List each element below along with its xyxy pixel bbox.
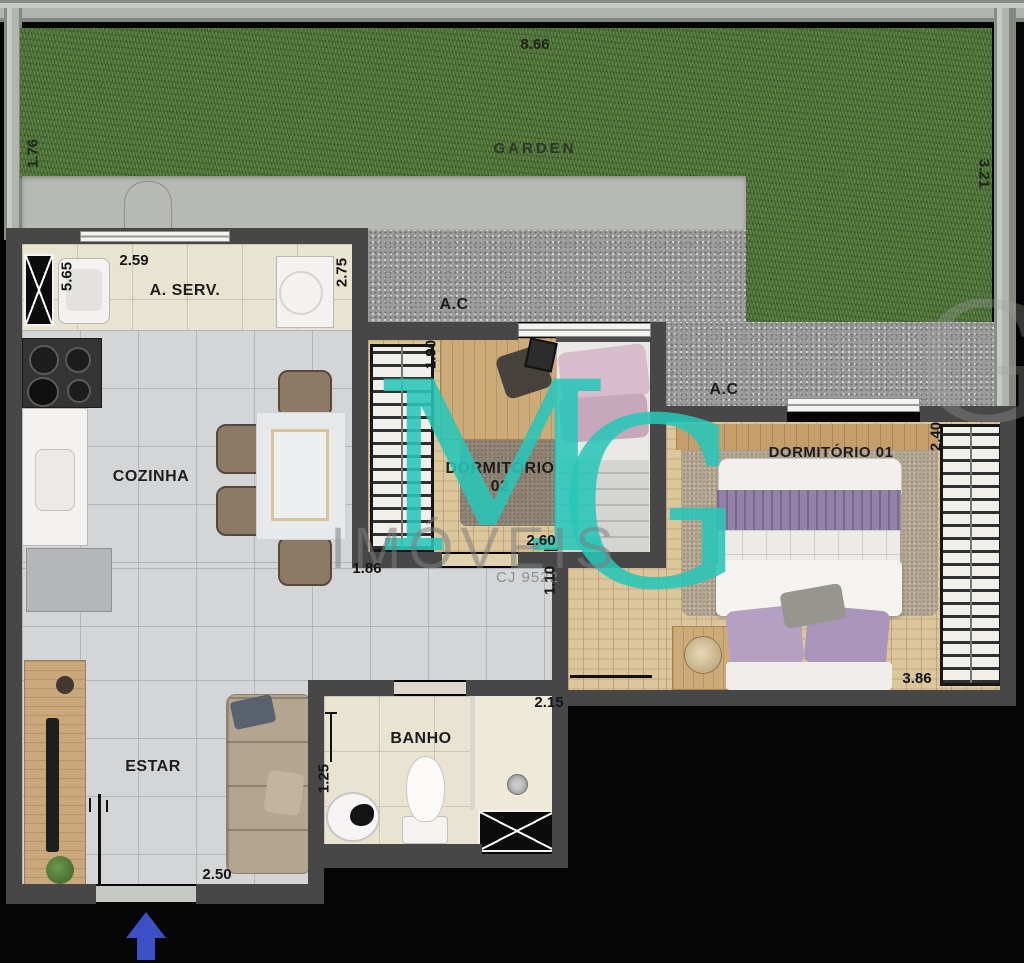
dim-bathroom-depth: 1.25 xyxy=(316,752,333,806)
washing-machine xyxy=(276,256,334,328)
service-area-label: A. SERV. xyxy=(130,282,240,300)
sliding-door-track xyxy=(570,675,652,678)
bedroom1-label: DORMITÓRIO 01 xyxy=(746,444,916,461)
bed1-foot-sheet xyxy=(726,662,892,690)
entry-threshold xyxy=(96,886,196,902)
garden-label: GARDEN xyxy=(470,140,600,157)
ac-label-1: A.C xyxy=(424,296,484,314)
service-window xyxy=(80,231,230,242)
dim-garden-width: 8.66 xyxy=(505,36,565,53)
living-label: ESTAR xyxy=(108,758,198,776)
bedroom1-window xyxy=(787,398,920,412)
shower-partition xyxy=(470,696,475,810)
garden-wall-top xyxy=(0,0,1024,22)
wall xyxy=(196,884,322,904)
entrance-arrow-head xyxy=(126,912,166,938)
dim-service-length: 5.65 xyxy=(59,250,76,304)
dim-entry-width: 2.50 xyxy=(192,866,242,883)
door-handle-mark xyxy=(89,798,91,812)
door-handle-mark xyxy=(106,800,108,812)
bathroom-label: BANHO xyxy=(376,730,466,748)
dining-chair xyxy=(278,370,332,418)
floor-plan: GARDEN A. SERV. A.C A.C COZINHA ESTAR BA… xyxy=(0,0,1024,963)
dining-chair xyxy=(278,536,332,586)
patio-gate xyxy=(124,181,172,230)
burner xyxy=(65,347,91,373)
dim-bedroom2-closet: 1.90 xyxy=(423,328,440,382)
bed1-bolster xyxy=(718,458,902,494)
washer-drum xyxy=(279,271,323,315)
plant xyxy=(46,856,74,884)
burner xyxy=(27,377,59,407)
wall xyxy=(466,854,568,868)
dim-hall-width: 1.10 xyxy=(542,555,559,607)
dim-service-width: 2.59 xyxy=(104,252,164,269)
dim-bedroom1-width: 3.86 xyxy=(892,670,942,687)
dim-service-right: 2.75 xyxy=(334,246,351,300)
tv xyxy=(46,718,59,852)
fridge xyxy=(26,548,112,612)
dim-garden-left-depth: 1.76 xyxy=(25,127,42,181)
entrance-arrow xyxy=(126,912,166,960)
wall xyxy=(564,690,1016,706)
shower-head xyxy=(507,774,528,795)
toilet-bowl xyxy=(406,756,445,822)
wall xyxy=(322,844,482,868)
service-shaft xyxy=(24,254,54,326)
entrance-arrow-stem xyxy=(137,938,155,960)
wall xyxy=(6,228,22,904)
dim-bedroom2-width: 2.60 xyxy=(516,532,566,549)
kitchen-label: COZINHA xyxy=(96,468,206,486)
dim-bedroom1-depth: 2.40 xyxy=(928,410,945,464)
kitchen-sink xyxy=(35,449,75,511)
burner xyxy=(29,345,59,375)
shower-shaft xyxy=(478,810,556,852)
bedroom1-closet xyxy=(940,424,1002,686)
burner xyxy=(67,379,91,403)
dim-tick xyxy=(325,712,337,714)
kitchen-counter xyxy=(22,408,88,546)
wall xyxy=(6,884,96,904)
dim-bedroom2-left: 1.86 xyxy=(342,560,392,577)
watermark-letter-g: G xyxy=(556,388,744,623)
decor-object xyxy=(56,676,74,694)
entry-door-swing xyxy=(98,794,101,886)
bed1-purple-throw xyxy=(717,490,901,530)
table-runner xyxy=(271,429,329,521)
dim-garden-right-depth: 3.21 xyxy=(976,147,993,201)
sofa-pillow xyxy=(263,770,304,817)
bathroom-door-opening xyxy=(394,682,466,694)
stove xyxy=(22,338,102,408)
towel xyxy=(350,804,374,826)
dim-bathroom-width: 2.15 xyxy=(524,694,574,711)
bathroom-sink xyxy=(326,792,380,842)
